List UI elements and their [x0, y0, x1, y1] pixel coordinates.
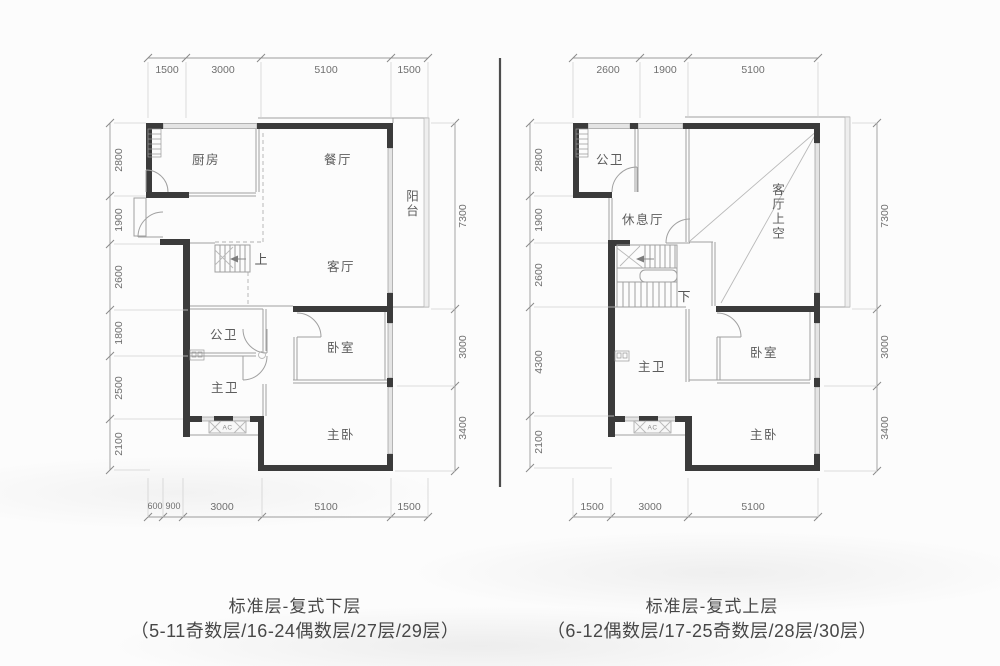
room-label-lounge: 休息厅 — [622, 212, 664, 227]
dim-label: 2600 — [533, 263, 545, 287]
dim-label: 2600 — [596, 64, 620, 76]
dim-label: 5100 — [314, 64, 338, 76]
dim-label: 5100 — [741, 501, 765, 513]
dim-label: 3400 — [457, 416, 469, 440]
dim-label: 1900 — [533, 208, 545, 232]
lounge-window — [638, 124, 683, 129]
dim-label: 1500 — [397, 64, 421, 76]
plan-title: 标准层-复式下层 — [229, 597, 362, 616]
right-plan-stairs: 下 — [617, 245, 691, 307]
living-balcony-window — [388, 148, 393, 293]
dim-label: 1500 — [580, 501, 604, 513]
left-plan-ac-unit: AC — [209, 421, 246, 433]
ac-label: AC — [647, 425, 657, 432]
floor-plan-sheet: 上 AC 厨房 餐厅 阳台 客厅 公卫 主卫 卧室 主卧 — [0, 0, 1000, 666]
left-plan-windows — [163, 124, 393, 455]
balcony-outer-rail — [424, 118, 429, 307]
room-label-bedroom: 卧室 — [750, 345, 778, 360]
left-plan-walls — [146, 123, 393, 471]
dim-label: 900 — [165, 501, 180, 511]
dim-label: 3000 — [457, 335, 469, 359]
room-label-dining: 餐厅 — [324, 152, 352, 167]
master-bedroom-window — [388, 387, 393, 454]
dim-label: 7300 — [457, 204, 469, 228]
dim-label: 5100 — [741, 64, 765, 76]
dim-label: 7300 — [879, 204, 891, 228]
kitchen-window — [163, 124, 257, 129]
right-plan-caption: 标准层-复式上层 （6-12偶数层/17-25奇数层/28层/30层） — [547, 597, 877, 641]
master-bath-door — [243, 356, 267, 380]
dim-label: 2800 — [533, 148, 545, 172]
plan-title: 标准层-复式上层 — [646, 597, 779, 616]
dim-label: 1900 — [113, 208, 125, 232]
left-plan-thin-lines — [134, 118, 429, 435]
bedroom-door — [717, 313, 741, 337]
dim-label: 3000 — [638, 501, 662, 513]
dim-label: 1900 — [653, 64, 677, 76]
dim-label: 3000 — [210, 501, 234, 513]
room-label-master-bath: 主卫 — [638, 360, 666, 374]
bedroom-door — [297, 313, 321, 337]
room-label-public-bath: 公卫 — [596, 153, 624, 167]
room-label-bedroom: 卧室 — [327, 340, 355, 355]
left-plan-caption: 标准层-复式下层 （5-11奇数层/16-24偶数层/27层/29层） — [131, 597, 460, 641]
stair-direction-label: 下 — [677, 289, 690, 304]
dim-label: 2500 — [113, 376, 125, 400]
dim-label: 2100 — [533, 430, 545, 454]
bedroom-window — [388, 323, 393, 378]
dim-label: 2600 — [113, 265, 125, 289]
master-bedroom-window — [815, 387, 820, 454]
room-label-living-void: 客厅上空 — [770, 182, 784, 241]
public-bath-door — [612, 167, 637, 192]
dim-label: 1500 — [397, 501, 421, 513]
dim-label: 3000 — [879, 335, 891, 359]
dim-label: 2800 — [113, 148, 125, 172]
public-bath-window — [588, 124, 630, 129]
bedroom-window — [815, 323, 820, 378]
stair-direction-label: 上 — [254, 252, 267, 267]
void-diagonal-lines — [690, 130, 818, 303]
entry-door — [138, 212, 163, 237]
room-label-master-bedroom: 主卧 — [750, 428, 778, 442]
entry-step-outline — [134, 198, 146, 236]
room-label-master-bath: 主卫 — [211, 381, 239, 395]
void-window — [815, 143, 820, 293]
right-plan: 下 AC 公卫 休息厅 客厅上空 主卫 卧室 主卧 — [526, 54, 891, 641]
ac-label: AC — [222, 425, 232, 432]
dim-label: 4300 — [533, 350, 545, 374]
room-label-kitchen: 厨房 — [192, 152, 220, 167]
room-label-balcony: 阳台 — [404, 190, 418, 219]
dim-label: 1500 — [155, 64, 179, 76]
dim-label: 1800 — [113, 321, 125, 345]
right-plan-walls — [573, 123, 820, 471]
left-plan: 上 AC 厨房 餐厅 阳台 客厅 公卫 主卫 卧室 主卧 — [106, 54, 469, 641]
room-label-living: 客厅 — [327, 259, 355, 274]
plan-floors: （5-11奇数层/16-24偶数层/27层/29层） — [131, 621, 460, 641]
floor-plan-drawing: 上 AC 厨房 餐厅 阳台 客厅 公卫 主卫 卧室 主卧 — [0, 0, 1000, 666]
dim-label: 600 — [147, 501, 162, 511]
dim-label: 3000 — [211, 64, 235, 76]
dim-label: 5100 — [314, 501, 338, 513]
dim-label: 2100 — [113, 432, 125, 456]
void-outer-rail — [845, 117, 850, 307]
dim-label: 3400 — [879, 416, 891, 440]
room-label-master-bedroom: 主卧 — [327, 428, 355, 442]
room-label-public-bath: 公卫 — [210, 328, 238, 342]
right-plan-ac-unit: AC — [634, 421, 671, 433]
plan-floors: （6-12偶数层/17-25奇数层/28层/30层） — [547, 621, 877, 641]
right-plan-thin-lines — [609, 117, 850, 435]
left-plan-stairs: 上 — [215, 245, 268, 272]
